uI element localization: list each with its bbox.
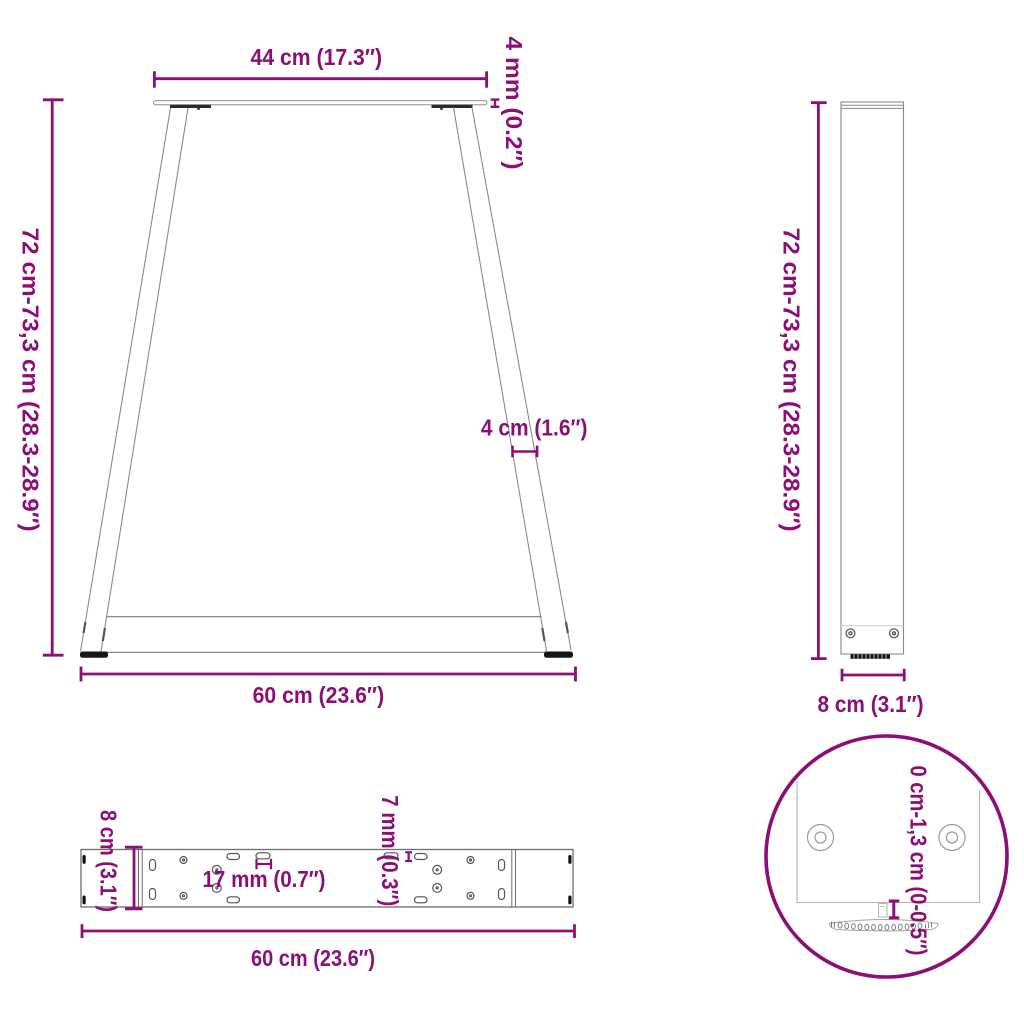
svg-text:8 cm (3.1″): 8 cm (3.1″): [96, 810, 122, 912]
svg-text:60 cm (23.6″): 60 cm (23.6″): [253, 682, 385, 708]
svg-text:8 cm (3.1″): 8 cm (3.1″): [818, 691, 924, 717]
svg-text:72 cm-73,3 cm (28.3-28.9″): 72 cm-73,3 cm (28.3-28.9″): [18, 228, 44, 532]
svg-text:17 mm (0.7″): 17 mm (0.7″): [203, 866, 326, 892]
svg-text:72 cm-73,3 cm (28.3-28.9″): 72 cm-73,3 cm (28.3-28.9″): [779, 228, 805, 532]
svg-text:4 cm (1.6″): 4 cm (1.6″): [481, 415, 588, 441]
svg-text:7 mm (0.3″): 7 mm (0.3″): [377, 795, 403, 906]
svg-text:60 cm (23.6″): 60 cm (23.6″): [251, 945, 375, 971]
svg-text:0 cm-1,3 cm (0-0.5″): 0 cm-1,3 cm (0-0.5″): [906, 766, 932, 956]
svg-text:4 mm (0.2″): 4 mm (0.2″): [501, 37, 527, 170]
svg-text:44 cm (17.3″): 44 cm (17.3″): [251, 44, 383, 70]
